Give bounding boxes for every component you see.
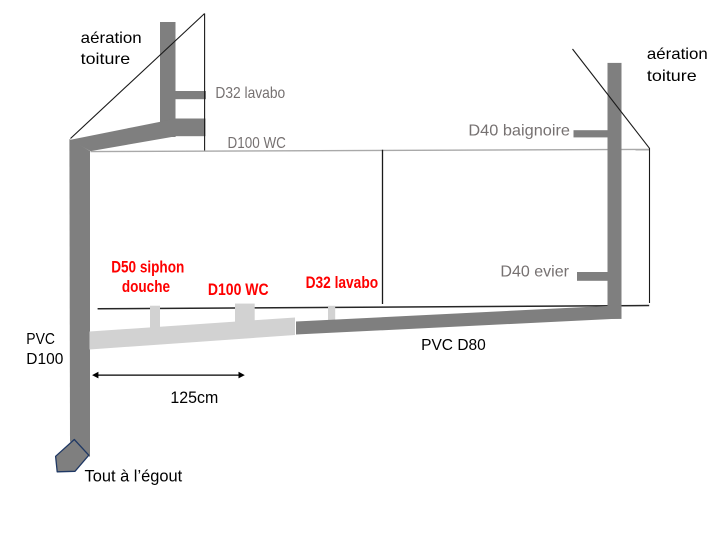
svg-text:Tout à l’égout: Tout à l’égout [85,468,183,486]
svg-text:PVC D80: PVC D80 [421,337,486,354]
svg-text:D32 lavabo: D32 lavabo [306,274,379,292]
svg-text:D40 baignoire: D40 baignoire [468,123,570,140]
svg-text:toiture: toiture [647,68,697,85]
svg-text:D50 siphon: D50 siphon [111,259,184,277]
svg-text:125cm: 125cm [170,388,218,407]
svg-text:D100 WC: D100 WC [208,281,269,299]
svg-text:aération: aération [81,30,142,47]
svg-text:aération: aération [647,46,708,63]
svg-text:D100 WC: D100 WC [228,135,286,152]
svg-text:D40 evier: D40 evier [500,264,569,281]
svg-text:toiture: toiture [81,51,131,68]
svg-text:D100: D100 [26,351,63,368]
svg-text:PVC: PVC [26,331,55,348]
svg-text:douche: douche [122,278,170,296]
svg-text:D32 lavabo: D32 lavabo [215,85,285,102]
